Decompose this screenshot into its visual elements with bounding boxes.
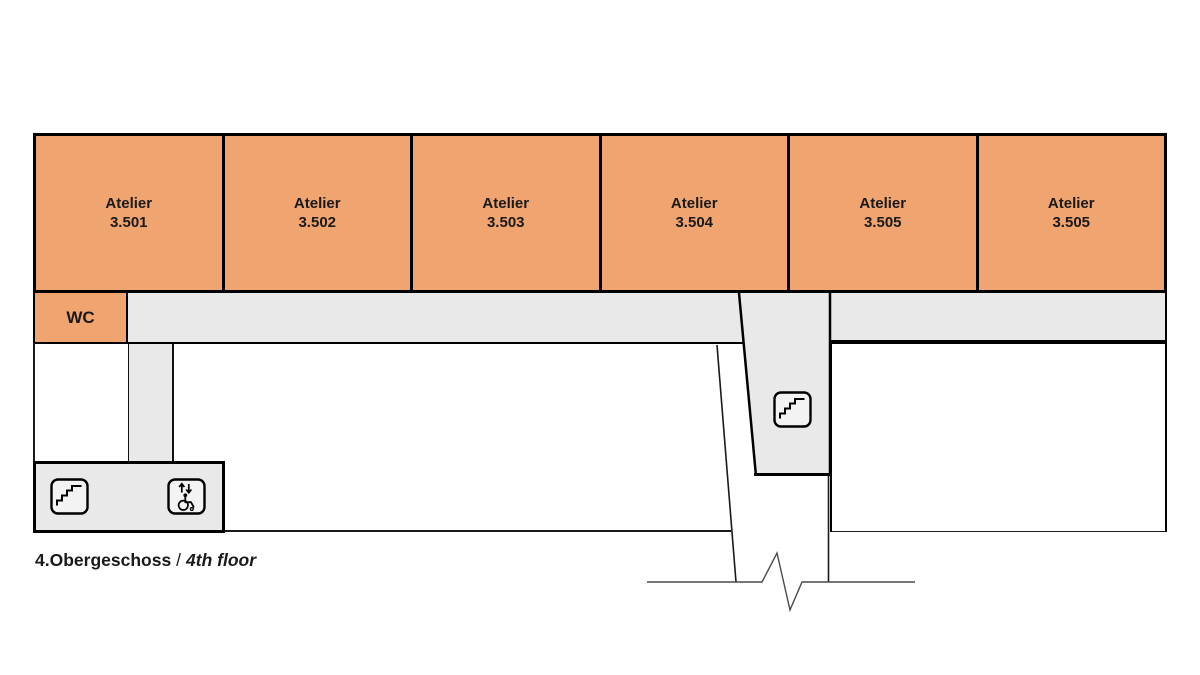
room-label: Atelier [859,194,906,213]
room-stairs-elevator [33,461,225,533]
atelier-band: Atelier 3.501 Atelier 3.502 Atelier 3.50… [33,133,1167,293]
room-label: Atelier [482,194,529,213]
stairs-icon [773,391,812,428]
floor-caption-german: 4.Obergeschoss [35,550,171,570]
room-label: Atelier [294,194,341,213]
room-number: 3.501 [110,213,148,232]
room-atelier-4: Atelier 3.504 [599,136,788,290]
room-atelier-3: Atelier 3.503 [410,136,599,290]
room-atelier-2: Atelier 3.502 [222,136,411,290]
stairs-icon [50,478,89,515]
corridor-branch [128,343,174,461]
floor-caption-separator: / [176,550,181,570]
corridor-bottom-wall-right [830,340,1167,344]
corridor-bottom-wall [33,342,744,344]
room-number: 3.504 [675,213,713,232]
room-number: 3.502 [298,213,336,232]
room-atelier-6: Atelier 3.505 [976,136,1165,290]
bottom-outline-line [225,530,731,532]
room-label: Atelier [671,194,718,213]
elevator-accessible-icon [167,478,206,515]
room-label: Atelier [1048,194,1095,213]
room-label: Atelier [105,194,152,213]
floor-caption: 4.Obergeschoss/4th floor [35,550,256,571]
room-number: 3.505 [1052,213,1090,232]
floorplan-canvas: Atelier 3.501 Atelier 3.502 Atelier 3.50… [0,0,1200,675]
room-number: 3.503 [487,213,525,232]
room-wc: WC [33,293,128,343]
room-atelier-5: Atelier 3.505 [787,136,976,290]
room-number: 3.505 [864,213,902,232]
wc-label: WC [66,308,94,328]
floor-caption-english: 4th floor [186,550,256,570]
left-outline-line [33,343,35,461]
room-atelier-1: Atelier 3.501 [36,136,222,290]
